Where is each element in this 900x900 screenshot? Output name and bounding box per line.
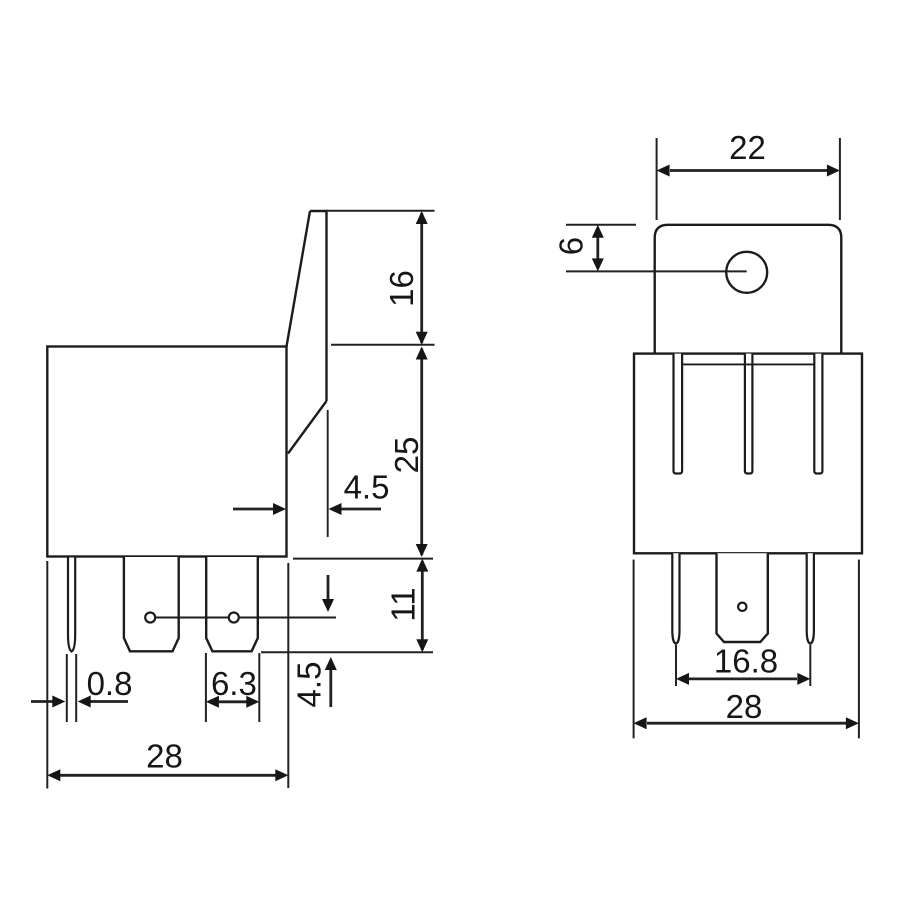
svg-text:25: 25 <box>388 437 425 474</box>
svg-text:28: 28 <box>146 738 183 775</box>
svg-text:16: 16 <box>383 270 420 307</box>
svg-text:11: 11 <box>385 587 422 621</box>
svg-text:22: 22 <box>729 129 766 166</box>
svg-text:4.5: 4.5 <box>291 662 328 708</box>
svg-text:6: 6 <box>553 237 590 255</box>
svg-text:4.5: 4.5 <box>344 469 390 506</box>
svg-text:28: 28 <box>726 688 763 725</box>
svg-text:6.3: 6.3 <box>211 665 257 702</box>
svg-text:16.8: 16.8 <box>714 643 778 680</box>
svg-text:0.8: 0.8 <box>87 665 133 702</box>
